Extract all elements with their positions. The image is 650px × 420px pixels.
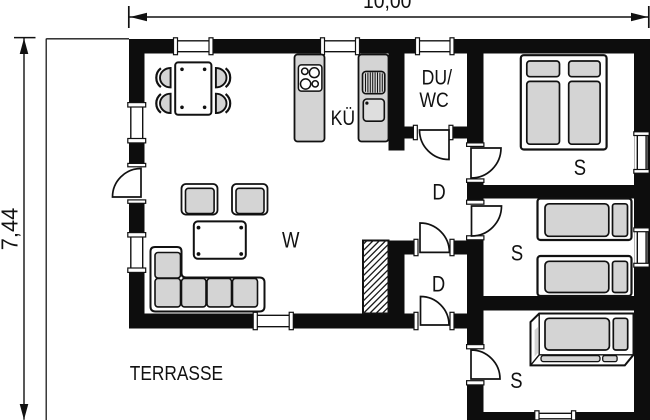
svg-text:7,44: 7,44	[0, 208, 22, 251]
svg-text:10,00: 10,00	[363, 0, 411, 13]
svg-text:WC: WC	[419, 88, 448, 112]
svg-text:W: W	[282, 229, 300, 253]
svg-text:S: S	[574, 157, 586, 181]
svg-text:S: S	[511, 242, 523, 266]
svg-text:KÜ: KÜ	[331, 107, 355, 131]
svg-text:D: D	[432, 273, 445, 297]
svg-text:TERRASSE: TERRASSE	[130, 363, 223, 386]
svg-text:DU/: DU/	[422, 66, 453, 90]
svg-text:D: D	[432, 181, 445, 205]
svg-text:S: S	[510, 370, 522, 394]
